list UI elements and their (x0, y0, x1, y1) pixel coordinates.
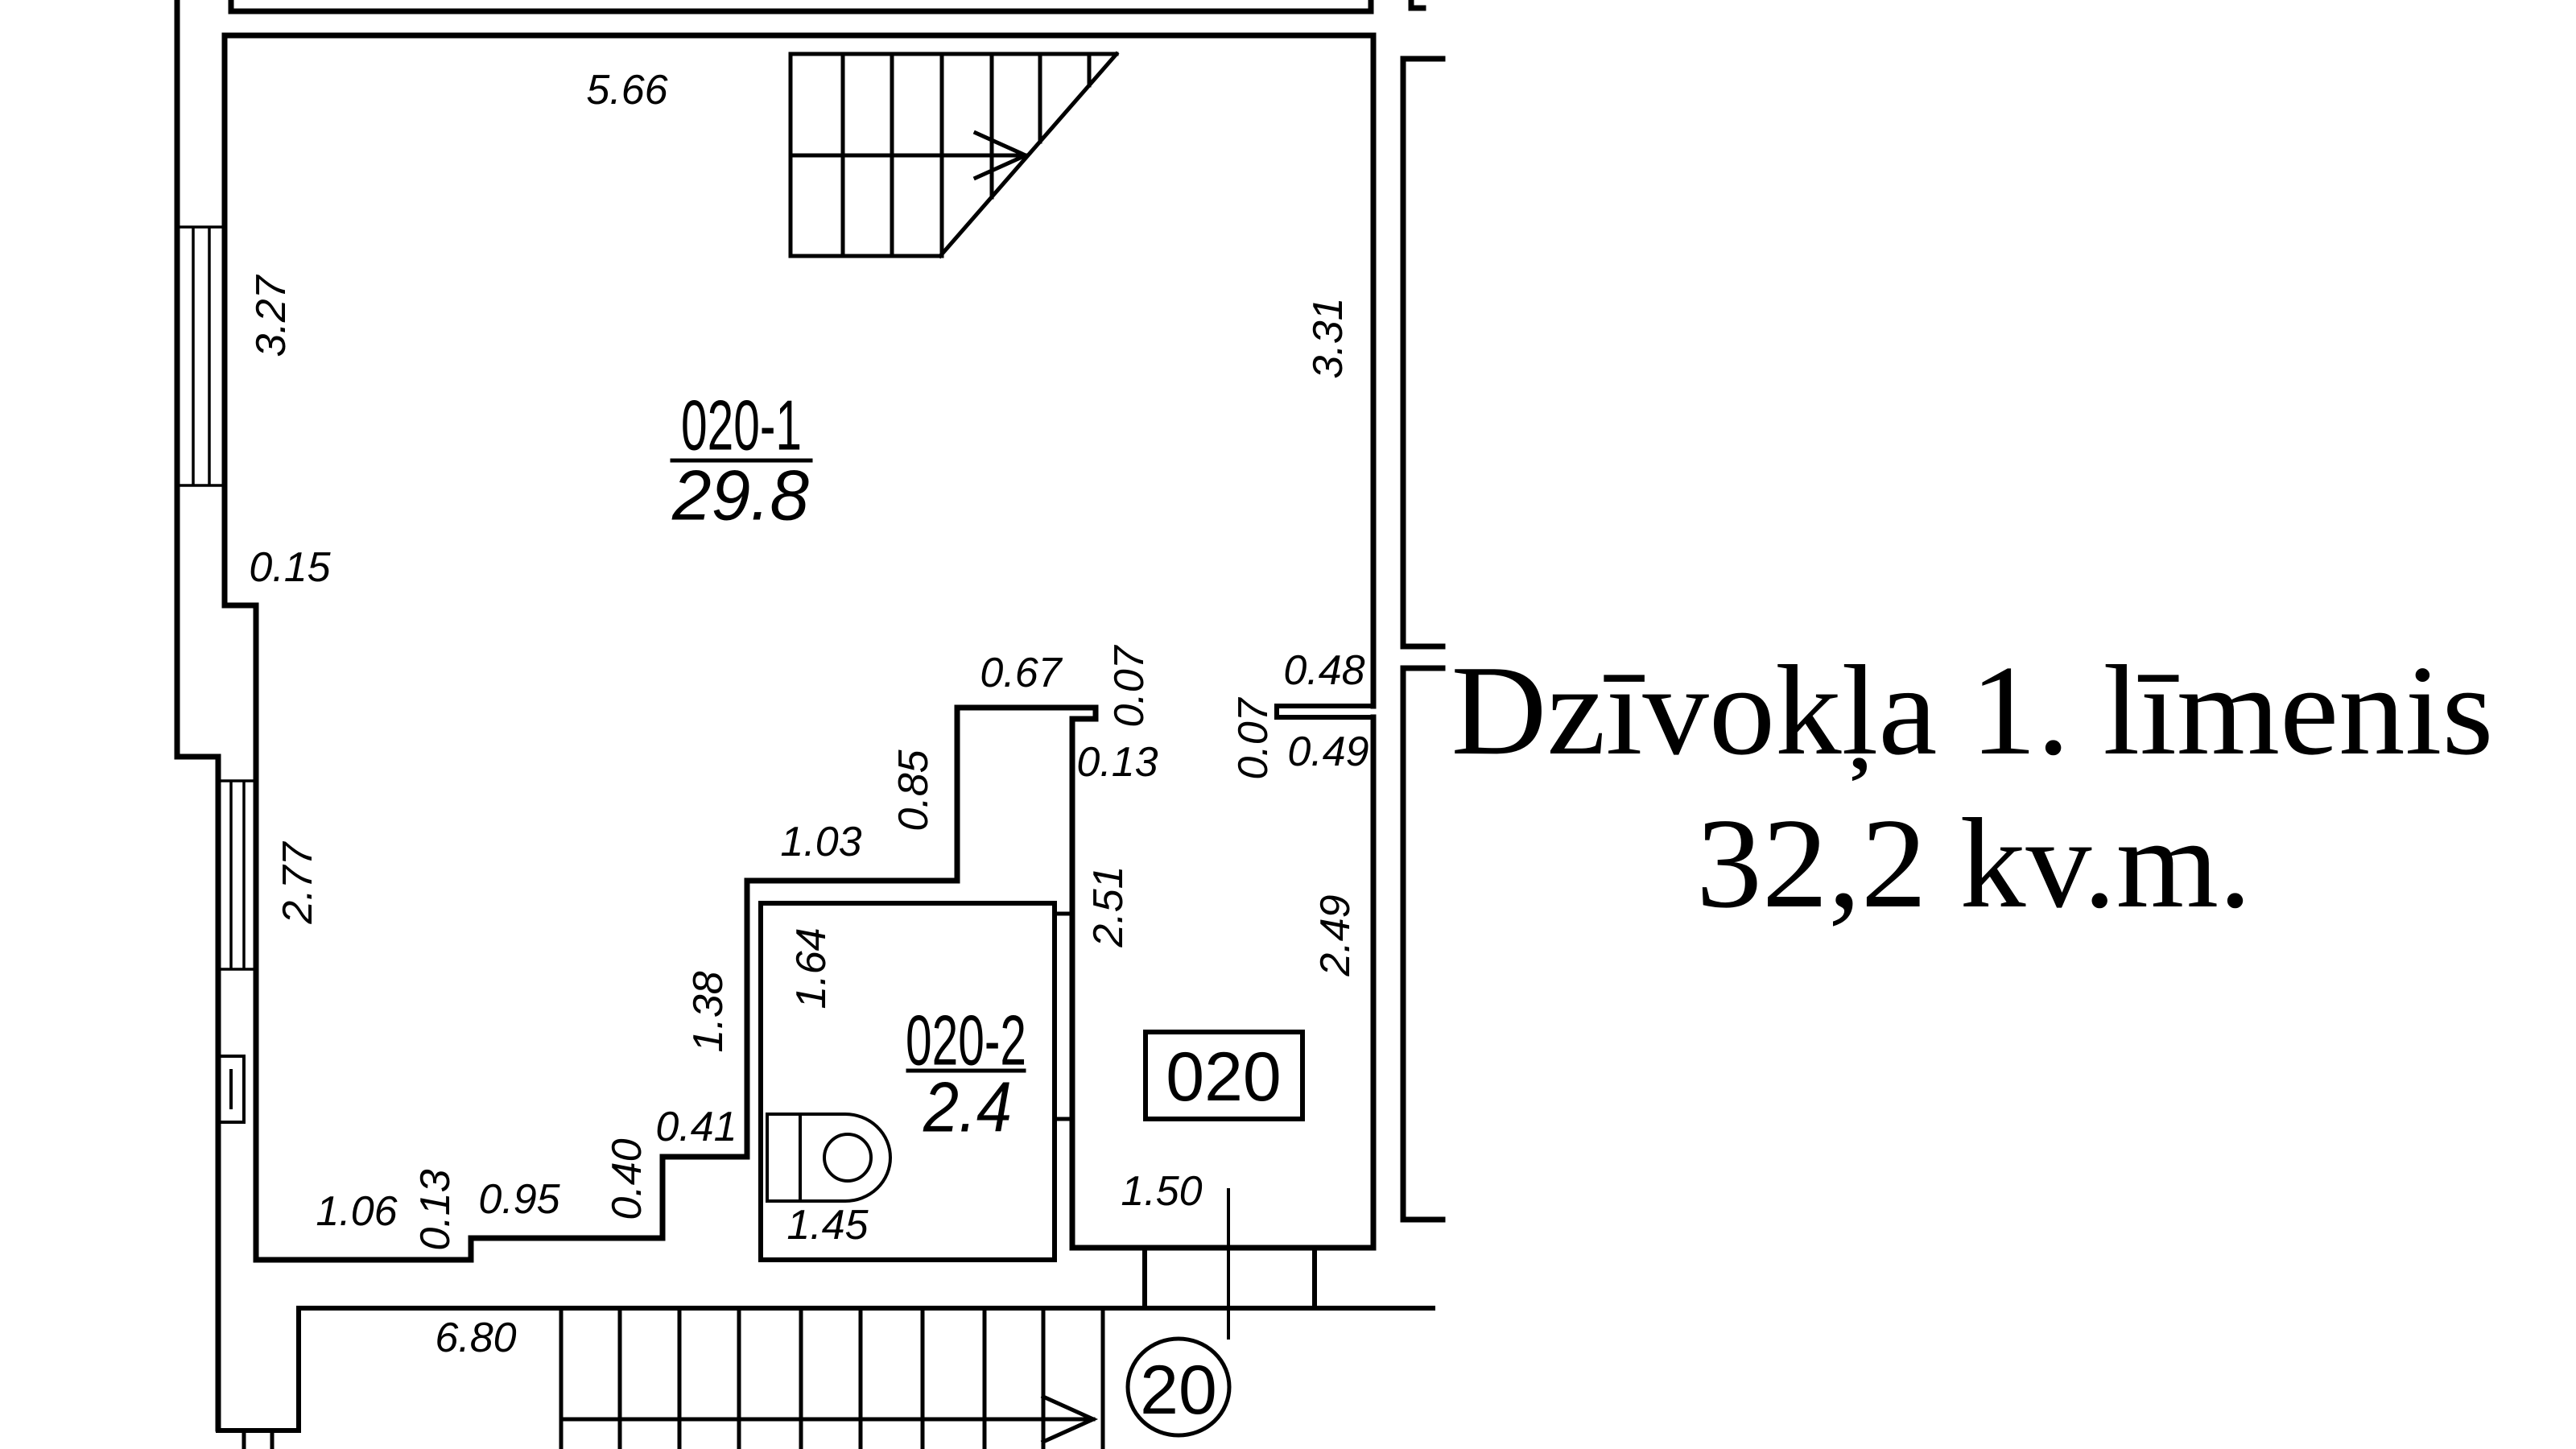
floor-plan-drawing: 020 20 020-1 29.8 020-2 2.4 5.66 3.27 0.… (0, 0, 2576, 1449)
dim-left-step: 0.15 (249, 544, 331, 591)
dim-right-gap-small: 0.07 (1230, 696, 1277, 779)
dim-top-width: 5.66 (586, 67, 667, 114)
window-lower-icon (218, 781, 256, 969)
room1-label: 020-1 29.8 (671, 386, 811, 535)
dim-wc-left-height: 1.38 (685, 971, 732, 1052)
dim-wc-width: 1.45 (786, 1202, 869, 1249)
dim-niche-top: 1.03 (780, 819, 861, 865)
dim-niche-step-v: 0.07 (1106, 644, 1153, 727)
dim-left-upper: 3.27 (248, 274, 295, 357)
wall-right-jog (1277, 706, 1373, 717)
floor-plan-page: 020 20 020-1 29.8 020-2 2.4 5.66 3.27 0.… (0, 0, 2576, 1449)
room2-area: 2.4 (923, 1067, 1012, 1147)
dim-niche-step-h: 0.13 (1076, 739, 1158, 786)
neighbour-bracket-lower (1403, 668, 1443, 1220)
window-upper-icon (177, 227, 225, 485)
title-line2: 32,2 kv.m. (1696, 791, 2252, 935)
dim-niche-width: 0.67 (980, 650, 1063, 696)
title-block: Dzīvokļa 1. līmenis 32,2 kv.m. (1451, 638, 2494, 935)
stair-circle-label: 20 (1140, 1352, 1217, 1429)
dim-wc-inner-height: 1.64 (788, 927, 835, 1009)
dim-right-gap-bottom: 0.49 (1287, 729, 1368, 775)
neighbour-boundary (1403, 0, 1443, 1220)
dim-right-upper: 3.31 (1305, 297, 1352, 378)
dim-right-lower: 2.49 (1312, 894, 1359, 976)
dim-bottom-step: 0.13 (412, 1169, 459, 1250)
dim-step-up: 0.40 (604, 1138, 650, 1220)
wall-fixture-icon (219, 1056, 244, 1122)
toilet-icon (767, 1114, 890, 1201)
stair-circle: 20 (1128, 1190, 1229, 1435)
neighbour-bracket-upper (1403, 59, 1443, 646)
dimension-labels: 5.66 3.27 0.15 2.77 1.06 0.13 0.95 0.40 … (248, 67, 1369, 1361)
wall-left-outer (177, 0, 218, 1429)
room2-label: 020-2 2.4 (906, 1001, 1026, 1147)
stairs-lower-icon (218, 1248, 1433, 1449)
room1-area: 29.8 (671, 456, 809, 535)
dim-step-right: 0.41 (655, 1104, 737, 1150)
interior-walls (747, 708, 1373, 1260)
dim-corridor-height: 2.51 (1085, 865, 1132, 947)
neighbour-hook (1411, 0, 1423, 8)
dim-lobby-width: 6.80 (435, 1315, 516, 1361)
wall-corridor (1072, 719, 1373, 1248)
dim-bottom-seg1: 1.06 (316, 1188, 397, 1235)
apartment-number-box: 020 (1146, 1032, 1302, 1119)
dim-left-lower: 2.77 (275, 840, 321, 924)
wall-left-inner (225, 35, 256, 1260)
dim-right-gap-top: 0.48 (1283, 647, 1364, 694)
room1-id: 020-1 (681, 386, 802, 465)
apartment-number-label: 020 (1166, 1038, 1282, 1116)
stairs-upper-icon (791, 54, 1117, 256)
dim-bottom-seg2: 0.95 (478, 1176, 560, 1223)
dim-corridor-width: 1.50 (1121, 1168, 1202, 1215)
wall-top-outer (231, 0, 1371, 11)
dim-niche-left: 0.85 (890, 749, 937, 831)
title-line1: Dzīvokļa 1. līmenis (1451, 638, 2494, 782)
